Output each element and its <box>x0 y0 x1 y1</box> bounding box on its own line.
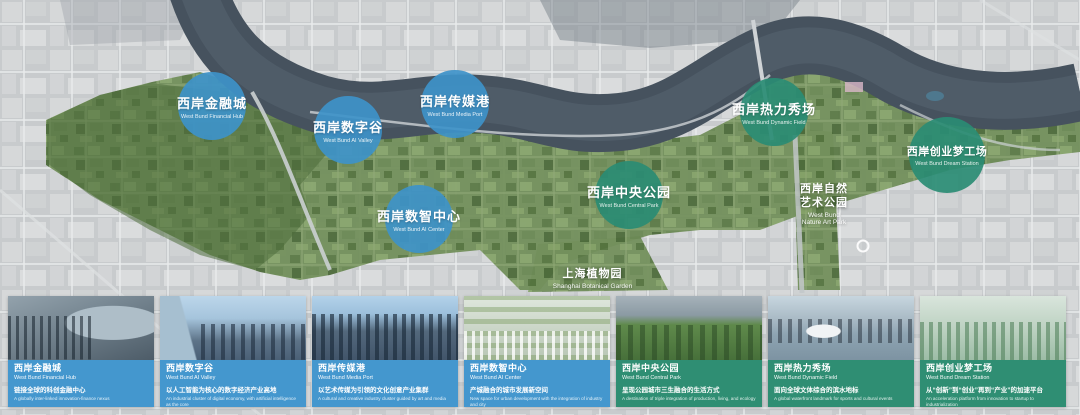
zone-circle-dream-station: 西岸创业梦工场 West Bund Dream Station <box>909 117 985 193</box>
label-zh-line2: 艺术公园 <box>788 197 860 211</box>
card-photo <box>160 296 306 360</box>
card-title-en: West Bund Media Port <box>318 375 452 381</box>
card-desc-en: An industrial cluster of digital economy… <box>166 396 300 407</box>
zone-circle-media-port: 西岸传媒港 West Bund Media Port <box>421 70 489 138</box>
card-photo <box>616 296 762 360</box>
zone-subtitle: West Bund Media Port <box>428 112 483 118</box>
card-photo <box>464 296 610 360</box>
zone-circle-ai-center: 西岸数智中心 West Bund AI Center <box>385 185 453 253</box>
card-desc-zh: 从“创新”到“创业”再到“产业”的加速平台 <box>926 384 1060 394</box>
card-caption: 西岸热力秀场 West Bund Dynamic Field 面向全球文体综合的… <box>768 360 914 407</box>
card-desc-zh: 呈现公园城市三生融合的生活方式 <box>622 384 756 394</box>
zone-circle-digital-valley: 西岸数字谷 West Bund AI Valley <box>314 96 382 164</box>
zone-title: 西岸传媒港 <box>420 91 490 110</box>
card-title-zh: 西岸中央公园 <box>622 364 756 374</box>
card-caption: 西岸数智中心 West Bund AI Center 产城融合的城市发展新空间 … <box>464 360 610 407</box>
card-dream-station: 西岸创业梦工场 West Bund Dream Station 从“创新”到“创… <box>920 296 1066 407</box>
west-bund-map-poster: 西岸金融城 West Bund Financial Hub 西岸数字谷 West… <box>0 0 1080 415</box>
card-desc-en: An acceleration platform from innovation… <box>926 396 1060 407</box>
card-title-zh: 西岸数字谷 <box>166 364 300 374</box>
label-zh-line1: 西岸自然 <box>788 183 860 197</box>
card-desc-en: New space for urban development with the… <box>470 396 604 407</box>
card-dynamic-field: 西岸热力秀场 West Bund Dynamic Field 面向全球文体综合的… <box>768 296 914 407</box>
card-caption: 西岸创业梦工场 West Bund Dream Station 从“创新”到“创… <box>920 360 1066 407</box>
card-central-park: 西岸中央公园 West Bund Central Park 呈现公园城市三生融合… <box>616 296 762 407</box>
card-title-zh: 西岸热力秀场 <box>774 364 908 374</box>
zone-title: 西岸热力秀场 <box>732 99 816 118</box>
card-desc-en: A destination of triple integration of p… <box>622 396 756 402</box>
card-media-port: 西岸传媒港 West Bund Media Port 以艺术传媒为引领的文化创意… <box>312 296 458 407</box>
card-caption: 西岸传媒港 West Bund Media Port 以艺术传媒为引领的文化创意… <box>312 360 458 407</box>
card-title-en: West Bund AI Valley <box>166 375 300 381</box>
card-title-en: West Bund Dynamic Field <box>774 375 908 381</box>
card-desc-en: A global waterfront landmark for sports … <box>774 396 908 402</box>
zone-circle-dynamic-field: 西岸热力秀场 West Bund Dynamic Field <box>740 78 808 146</box>
district-card-strip: 西岸金融城 West Bund Financial Hub 链接全球的科创金融中… <box>8 296 1066 407</box>
card-digital-valley: 西岸数字谷 West Bund AI Valley 以人工智能为核心的数字经济产… <box>160 296 306 407</box>
card-desc-zh: 以人工智能为核心的数字经济产业高地 <box>166 384 300 394</box>
zone-circle-central-park: 西岸中央公园 West Bund Central Park <box>595 161 663 229</box>
card-photo <box>920 296 1066 360</box>
card-desc-zh: 面向全球文体综合的滨水地标 <box>774 384 908 394</box>
card-title-zh: 西岸金融城 <box>14 364 148 374</box>
zone-subtitle: West Bund AI Valley <box>323 138 372 144</box>
card-title-en: West Bund AI Center <box>470 375 604 381</box>
card-title-zh: 西岸数智中心 <box>470 364 604 374</box>
pink-block <box>845 82 863 92</box>
card-desc-zh: 以艺术传媒为引领的文化创意产业集群 <box>318 384 452 394</box>
card-desc-zh: 链接全球的科创金融中心 <box>14 384 148 394</box>
card-caption: 西岸中央公园 West Bund Central Park 呈现公园城市三生融合… <box>616 360 762 407</box>
card-desc-en: A globally inter-linked innovation-finan… <box>14 396 148 402</box>
card-caption: 西岸数字谷 West Bund AI Valley 以人工智能为核心的数字经济产… <box>160 360 306 407</box>
zone-subtitle: West Bund Central Park <box>600 203 659 209</box>
card-desc-en: A cultural and creative industry cluster… <box>318 396 452 402</box>
map-label-botanical-garden: 上海植物园 Shanghai Botanical Garden <box>545 268 640 291</box>
pond <box>926 91 944 101</box>
card-desc-zh: 产城融合的城市发展新空间 <box>470 384 604 394</box>
zone-subtitle: West Bund Dynamic Field <box>742 120 805 126</box>
label-en: Shanghai Botanical Garden <box>545 283 640 291</box>
zone-title: 西岸创业梦工场 <box>907 143 988 159</box>
card-photo <box>312 296 458 360</box>
card-photo <box>8 296 154 360</box>
card-photo <box>768 296 914 360</box>
zone-subtitle: West Bund Dream Station <box>915 161 978 167</box>
card-financial-hub: 西岸金融城 West Bund Financial Hub 链接全球的科创金融中… <box>8 296 154 407</box>
zone-circle-financial-hub: 西岸金融城 West Bund Financial Hub <box>178 72 246 140</box>
zone-subtitle: West Bund Financial Hub <box>181 114 243 120</box>
label-en-line2: Nature Art Park <box>788 219 860 227</box>
zone-title: 西岸数字谷 <box>313 117 383 136</box>
card-title-en: West Bund Dream Station <box>926 375 1060 381</box>
card-caption: 西岸金融城 West Bund Financial Hub 链接全球的科创金融中… <box>8 360 154 407</box>
card-title-en: West Bund Financial Hub <box>14 375 148 381</box>
zone-title: 西岸金融城 <box>177 93 247 112</box>
label-zh: 上海植物园 <box>545 268 640 282</box>
zone-subtitle: West Bund AI Center <box>393 227 444 233</box>
card-title-zh: 西岸创业梦工场 <box>926 364 1060 374</box>
card-title-zh: 西岸传媒港 <box>318 364 452 374</box>
zone-title: 西岸中央公园 <box>587 182 671 201</box>
zone-title: 西岸数智中心 <box>377 206 461 225</box>
card-title-en: West Bund Central Park <box>622 375 756 381</box>
card-ai-center: 西岸数智中心 West Bund AI Center 产城融合的城市发展新空间 … <box>464 296 610 407</box>
map-label-nature-art-park: 西岸自然 艺术公园 West Bund Nature Art Park <box>788 183 860 227</box>
